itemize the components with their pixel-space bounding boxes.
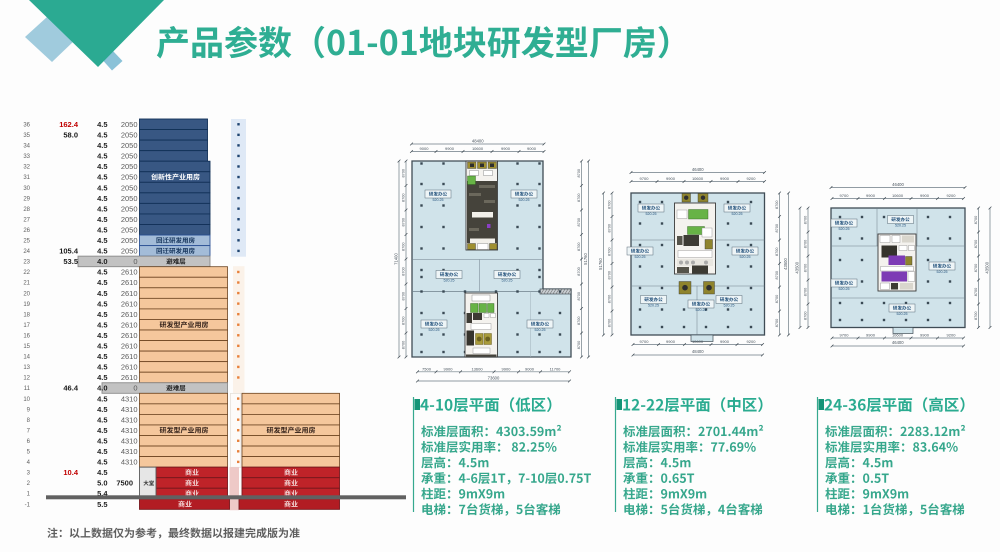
- svg-text:4.5: 4.5: [97, 278, 107, 287]
- svg-text:30: 30: [23, 186, 30, 192]
- svg-text:520.25: 520.25: [635, 255, 646, 259]
- svg-text:13600: 13600: [471, 366, 483, 371]
- svg-text:8700: 8700: [608, 224, 612, 232]
- svg-text:4.5: 4.5: [97, 468, 107, 477]
- svg-text:2050: 2050: [121, 152, 138, 161]
- svg-text:4.5: 4.5: [97, 405, 107, 414]
- svg-text:46400: 46400: [892, 340, 904, 345]
- svg-text:9000: 9000: [527, 146, 537, 151]
- svg-text:4.5: 4.5: [97, 331, 107, 340]
- svg-text:520.25: 520.25: [648, 304, 659, 308]
- svg-text:520.25: 520.25: [937, 270, 948, 274]
- svg-text:9900: 9900: [866, 333, 876, 338]
- svg-text:43500: 43500: [783, 258, 788, 270]
- svg-text:-1: -1: [25, 502, 31, 508]
- svg-text:8700: 8700: [577, 341, 581, 349]
- svg-text:2050: 2050: [121, 183, 138, 192]
- svg-text:8700: 8700: [577, 267, 581, 275]
- svg-text:520.25: 520.25: [740, 255, 751, 259]
- svg-text:105.4: 105.4: [59, 247, 79, 256]
- svg-text:8700: 8700: [608, 319, 612, 327]
- svg-text:8700: 8700: [775, 271, 779, 279]
- svg-text:8700: 8700: [775, 248, 779, 256]
- svg-text:4.5: 4.5: [97, 299, 107, 308]
- svg-text:2050: 2050: [121, 247, 138, 256]
- svg-text:4.5: 4.5: [97, 183, 107, 192]
- svg-text:9900: 9900: [666, 339, 676, 344]
- svg-text:2610: 2610: [121, 352, 138, 361]
- svg-text:8700: 8700: [577, 194, 581, 202]
- svg-text:32: 32: [23, 165, 30, 171]
- svg-text:8700: 8700: [608, 248, 612, 256]
- svg-text:2050: 2050: [121, 226, 138, 235]
- svg-text:43500: 43500: [795, 261, 800, 273]
- svg-text:5.0: 5.0: [97, 479, 107, 488]
- svg-text:31: 31: [23, 175, 30, 181]
- svg-text:10600: 10600: [692, 176, 704, 181]
- svg-text:8700: 8700: [804, 216, 808, 224]
- svg-text:36: 36: [23, 123, 30, 129]
- svg-text:28: 28: [23, 207, 30, 213]
- svg-text:8700: 8700: [402, 169, 406, 177]
- svg-text:520.25: 520.25: [895, 224, 906, 228]
- svg-text:48400: 48400: [692, 349, 704, 354]
- svg-text:9900: 9900: [920, 193, 930, 198]
- svg-text:13: 13: [23, 365, 30, 371]
- svg-text:4.5: 4.5: [97, 226, 107, 235]
- svg-text:17: 17: [23, 323, 30, 329]
- svg-text:2050: 2050: [121, 236, 138, 245]
- svg-text:8700: 8700: [608, 201, 612, 209]
- svg-text:8700: 8700: [577, 218, 581, 226]
- svg-text:16: 16: [23, 334, 30, 340]
- svg-text:8700: 8700: [402, 292, 406, 300]
- svg-text:4.5: 4.5: [97, 289, 107, 298]
- svg-text:4310: 4310: [121, 426, 138, 435]
- svg-text:12: 12: [23, 376, 30, 382]
- svg-text:9700: 9700: [640, 339, 650, 344]
- svg-text:14: 14: [23, 355, 30, 361]
- svg-text:4.5: 4.5: [97, 458, 107, 467]
- svg-text:8700: 8700: [577, 169, 581, 177]
- svg-text:34: 34: [23, 144, 30, 150]
- svg-text:2610: 2610: [121, 299, 138, 308]
- svg-text:8700: 8700: [974, 288, 978, 296]
- svg-text:25: 25: [23, 239, 30, 245]
- svg-text:53.5: 53.5: [63, 257, 78, 266]
- svg-text:51760: 51760: [598, 258, 603, 270]
- svg-text:4.5: 4.5: [97, 426, 107, 435]
- svg-text:8700: 8700: [974, 240, 978, 248]
- svg-text:4310: 4310: [121, 447, 138, 456]
- svg-text:8700: 8700: [974, 216, 978, 224]
- svg-text:8700: 8700: [402, 243, 406, 251]
- svg-text:8700: 8700: [775, 295, 779, 303]
- svg-text:8700: 8700: [402, 317, 406, 325]
- svg-text:10600: 10600: [892, 333, 904, 338]
- svg-text:8700: 8700: [775, 319, 779, 327]
- svg-text:9900: 9900: [920, 333, 930, 338]
- svg-text:11: 11: [24, 386, 31, 392]
- svg-text:8700: 8700: [608, 271, 612, 279]
- svg-text:520.25: 520.25: [519, 198, 530, 202]
- svg-text:2050: 2050: [121, 173, 138, 182]
- svg-text:9700: 9700: [640, 176, 650, 181]
- svg-text:0: 0: [133, 257, 137, 266]
- svg-text:8700: 8700: [577, 243, 581, 251]
- svg-text:51760: 51760: [583, 253, 588, 265]
- svg-text:58.0: 58.0: [63, 131, 78, 140]
- svg-text:4.5: 4.5: [97, 215, 107, 224]
- svg-text:27: 27: [23, 217, 30, 223]
- svg-text:21: 21: [23, 281, 30, 287]
- svg-text:0: 0: [133, 384, 137, 393]
- svg-text:29: 29: [23, 196, 30, 202]
- svg-text:8700: 8700: [974, 312, 978, 320]
- svg-text:71400: 71400: [394, 253, 399, 265]
- svg-text:26: 26: [23, 228, 30, 234]
- svg-text:8700: 8700: [804, 288, 808, 296]
- svg-text:2610: 2610: [121, 278, 138, 287]
- svg-text:2610: 2610: [121, 363, 138, 372]
- svg-text:2610: 2610: [121, 331, 138, 340]
- svg-text:2610: 2610: [121, 310, 138, 319]
- svg-text:9900: 9900: [445, 146, 455, 151]
- svg-text:22: 22: [23, 270, 30, 276]
- svg-text:4.5: 4.5: [97, 247, 107, 256]
- svg-text:2050: 2050: [121, 194, 138, 203]
- svg-text:8700: 8700: [775, 201, 779, 209]
- svg-text:4310: 4310: [121, 415, 138, 424]
- svg-text:2610: 2610: [121, 268, 138, 277]
- svg-text:46400: 46400: [892, 182, 904, 187]
- svg-text:4.5: 4.5: [97, 373, 107, 382]
- svg-text:520.25: 520.25: [433, 198, 444, 202]
- svg-text:4.5: 4.5: [97, 173, 107, 182]
- svg-text:8700: 8700: [402, 267, 406, 275]
- svg-text:9200: 9200: [747, 176, 757, 181]
- svg-text:520.25: 520.25: [535, 328, 546, 332]
- svg-text:7500: 7500: [116, 479, 133, 488]
- svg-text:4.5: 4.5: [97, 204, 107, 213]
- svg-text:4310: 4310: [121, 394, 138, 403]
- svg-text:4.5: 4.5: [97, 152, 107, 161]
- svg-text:9900: 9900: [720, 339, 730, 344]
- svg-text:2610: 2610: [121, 320, 138, 329]
- svg-text:8700: 8700: [402, 341, 406, 349]
- svg-text:8700: 8700: [402, 194, 406, 202]
- svg-text:9900: 9900: [502, 366, 512, 371]
- svg-text:2050: 2050: [121, 131, 138, 140]
- svg-text:4.5: 4.5: [97, 394, 107, 403]
- svg-text:9000: 9000: [525, 366, 535, 371]
- svg-text:520.25: 520.25: [646, 212, 657, 216]
- svg-text:4.5: 4.5: [97, 310, 107, 319]
- svg-text:10600: 10600: [892, 193, 904, 198]
- svg-text:4.5: 4.5: [97, 120, 107, 129]
- svg-text:4.5: 4.5: [97, 141, 107, 150]
- svg-text:15: 15: [23, 344, 30, 350]
- svg-text:4.5: 4.5: [97, 320, 107, 329]
- svg-text:520.25: 520.25: [696, 308, 707, 312]
- svg-text:24: 24: [23, 249, 30, 255]
- svg-text:520.25: 520.25: [429, 328, 440, 332]
- svg-text:4310: 4310: [121, 437, 138, 446]
- svg-text:520.25: 520.25: [839, 227, 850, 231]
- svg-text:18: 18: [23, 312, 30, 318]
- svg-text:2050: 2050: [121, 120, 138, 129]
- svg-text:73600: 73600: [488, 376, 500, 381]
- svg-text:8700: 8700: [608, 295, 612, 303]
- svg-text:2050: 2050: [121, 204, 138, 213]
- svg-text:2050: 2050: [121, 141, 138, 150]
- svg-text:2050: 2050: [121, 162, 138, 171]
- svg-text:8700: 8700: [577, 292, 581, 300]
- svg-text:520.25: 520.25: [444, 279, 455, 283]
- svg-text:20: 20: [23, 291, 30, 297]
- svg-text:8700: 8700: [804, 264, 808, 272]
- svg-text:11700: 11700: [550, 366, 562, 371]
- svg-text:23: 23: [23, 260, 30, 266]
- svg-text:9900: 9900: [501, 146, 511, 151]
- svg-text:46400: 46400: [692, 167, 704, 172]
- svg-text:4.5: 4.5: [97, 162, 107, 171]
- svg-text:8700: 8700: [577, 317, 581, 325]
- svg-text:4.0: 4.0: [97, 257, 107, 266]
- svg-text:4.5: 4.5: [97, 194, 107, 203]
- svg-text:9700: 9700: [840, 193, 850, 198]
- svg-text:4.5: 4.5: [97, 437, 107, 446]
- svg-text:46.4: 46.4: [63, 384, 78, 393]
- svg-text:9200: 9200: [947, 333, 957, 338]
- svg-text:4.5: 4.5: [97, 342, 107, 351]
- svg-text:4.5: 4.5: [97, 363, 107, 372]
- svg-text:2610: 2610: [121, 342, 138, 351]
- svg-text:4.5: 4.5: [97, 352, 107, 361]
- svg-text:8700: 8700: [402, 218, 406, 226]
- svg-text:9900: 9900: [866, 193, 876, 198]
- svg-text:4.5: 4.5: [97, 236, 107, 245]
- svg-text:4.5: 4.5: [97, 131, 107, 140]
- svg-text:520.25: 520.25: [732, 212, 743, 216]
- svg-text:10: 10: [23, 397, 30, 403]
- svg-text:7500: 7500: [422, 366, 432, 371]
- svg-text:9200: 9200: [747, 339, 757, 344]
- svg-text:4310: 4310: [121, 458, 138, 467]
- svg-text:4.5: 4.5: [97, 268, 107, 277]
- svg-text:9900: 9900: [444, 366, 454, 371]
- svg-text:8700: 8700: [804, 312, 808, 320]
- svg-text:9700: 9700: [840, 333, 850, 338]
- svg-text:33: 33: [23, 154, 30, 160]
- svg-text:2610: 2610: [121, 373, 138, 382]
- svg-text:520.25: 520.25: [897, 312, 908, 316]
- svg-text:2610: 2610: [121, 289, 138, 298]
- svg-text:10600: 10600: [472, 146, 484, 151]
- svg-text:9900: 9900: [666, 176, 676, 181]
- svg-text:9900: 9900: [720, 176, 730, 181]
- svg-text:10600: 10600: [692, 339, 704, 344]
- svg-text:48400: 48400: [472, 139, 484, 144]
- svg-text:2050: 2050: [121, 215, 138, 224]
- svg-text:4310: 4310: [121, 405, 138, 414]
- svg-text:4.5: 4.5: [97, 415, 107, 424]
- svg-text:4.5: 4.5: [97, 447, 107, 456]
- svg-text:8700: 8700: [974, 264, 978, 272]
- svg-text:5.5: 5.5: [97, 500, 107, 509]
- svg-text:19: 19: [23, 302, 30, 308]
- svg-text:35: 35: [23, 133, 30, 139]
- svg-text:8700: 8700: [804, 240, 808, 248]
- svg-text:4.0: 4.0: [97, 384, 107, 393]
- svg-text:520.25: 520.25: [502, 279, 513, 283]
- svg-text:520.25: 520.25: [839, 287, 850, 291]
- svg-text:8700: 8700: [775, 224, 779, 232]
- svg-text:162.4: 162.4: [59, 120, 79, 129]
- svg-text:43500: 43500: [985, 261, 990, 273]
- svg-text:9000: 9000: [420, 146, 430, 151]
- svg-text:9200: 9200: [947, 193, 957, 198]
- svg-text:520.25: 520.25: [724, 304, 735, 308]
- svg-text:10.4: 10.4: [63, 468, 78, 477]
